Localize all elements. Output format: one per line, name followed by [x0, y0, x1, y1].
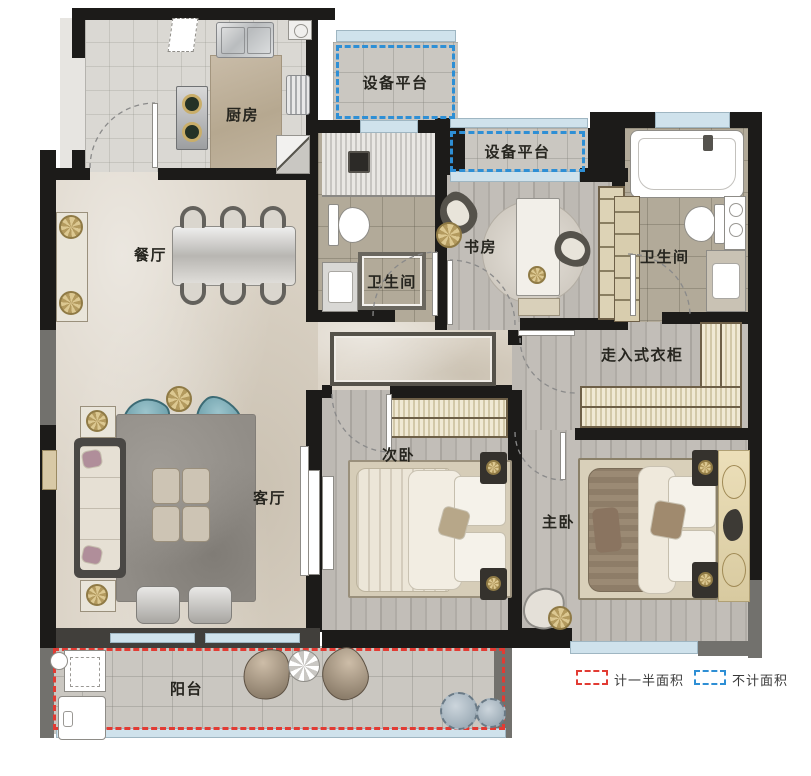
sink-basin: [247, 27, 271, 54]
burner: [182, 122, 202, 142]
headboard-motif: [722, 465, 746, 499]
bedroom2-label: 次卧: [382, 444, 415, 465]
dining-chair: [260, 206, 286, 228]
headboard-panel: [718, 450, 750, 602]
sideboard-decor: [59, 215, 83, 239]
sink-basin: [70, 657, 100, 687]
burner: [182, 94, 202, 114]
wall: [318, 120, 360, 133]
window-sill: [336, 30, 456, 42]
master-label: 主卧: [542, 511, 575, 532]
balcony-table: [288, 650, 320, 682]
legend: 计一半面积 不计面积: [576, 666, 796, 692]
kitchen-counter-appliance: [288, 20, 312, 40]
dining-chair: [220, 206, 246, 228]
plant: [440, 692, 478, 730]
sink-basin: [328, 271, 353, 303]
wall: [390, 385, 512, 398]
washer-dial: [63, 711, 73, 727]
laundry-sink: [64, 650, 106, 692]
window-sill: [450, 118, 588, 128]
ceiling-lamp: [166, 386, 192, 412]
desk-decor: [528, 266, 546, 284]
bathtub-basin: [638, 138, 736, 190]
wardrobe-rail: [390, 417, 506, 419]
wall-gray: [748, 580, 762, 658]
nightstand: [480, 452, 507, 484]
legend-not-counted-label: 不计面积: [732, 670, 788, 689]
lamp: [698, 572, 713, 587]
dining-sideboard: [56, 212, 88, 322]
wardrobe: [388, 398, 508, 438]
wall: [748, 112, 762, 580]
balcony-sliding-glass: [110, 633, 195, 643]
closet-label: 走入式衣柜: [601, 344, 684, 365]
ottoman: [182, 506, 210, 542]
ladder-shelf: [614, 196, 640, 322]
bath2-label: 卫生间: [640, 246, 690, 267]
lamp: [486, 576, 501, 591]
wall: [72, 8, 85, 58]
shower-drain: [348, 151, 370, 173]
platform-top-area: 设备平台: [336, 45, 455, 119]
window: [655, 112, 730, 128]
ottoman: [152, 506, 180, 542]
ottoman: [152, 468, 180, 504]
deco-pillow: [649, 499, 687, 540]
dish-rack: [286, 75, 310, 115]
bathtub-faucet: [703, 135, 713, 151]
balcony-sliding-glass: [205, 633, 300, 643]
wall: [437, 310, 447, 322]
bathtub: [630, 130, 744, 198]
platform-mid-area: 设备平台: [450, 131, 585, 172]
lamp: [486, 460, 501, 475]
media-panel: [300, 446, 309, 576]
door-leaf: [432, 252, 438, 316]
master-side-table: [548, 606, 572, 630]
wall: [40, 150, 56, 330]
dining-label: 餐厅: [134, 244, 167, 265]
living-label: 客厅: [253, 487, 286, 508]
door-leaf: [630, 254, 636, 316]
window: [360, 120, 418, 133]
towel-roll: [729, 203, 743, 217]
corridor-floor-inlay: [330, 332, 496, 386]
dining-table: [172, 226, 296, 286]
wall: [418, 120, 435, 133]
towel-roll: [729, 223, 743, 237]
nightstand: [692, 562, 719, 598]
door-leaf: [518, 330, 575, 336]
wall: [512, 628, 572, 648]
sink-basin: [221, 27, 245, 54]
stool: [136, 586, 180, 624]
door-leaf: [560, 432, 566, 480]
wall-console: [42, 450, 57, 490]
side-table: [80, 406, 116, 438]
study-side-table: [436, 222, 462, 248]
wardrobe: [700, 322, 742, 388]
entry-door-leaf: [168, 18, 199, 52]
window: [450, 171, 580, 182]
blanket-fold: [592, 507, 622, 553]
bath1-label: 卫生间: [367, 271, 417, 292]
vanity-sink: [706, 250, 746, 312]
balcony-label: 阳台: [170, 678, 203, 699]
sink-basin: [712, 263, 740, 299]
legend-half-area-label: 计一半面积: [614, 670, 684, 689]
wall-gray-window: [40, 330, 56, 425]
lamp: [698, 460, 713, 475]
door-leaf: [447, 260, 453, 325]
side-table: [80, 580, 116, 612]
study-label: 书房: [464, 236, 497, 257]
legend-swatch-half-area: [576, 670, 608, 685]
bath2-shelf: [724, 196, 746, 250]
side-table-decor: [86, 410, 108, 432]
door-leaf: [152, 103, 158, 168]
window: [570, 641, 698, 654]
kitchen-cabinet: [276, 135, 310, 174]
shower-floor: [322, 133, 435, 197]
wall: [322, 385, 332, 398]
headboard-center-motif: [723, 509, 743, 541]
wall-niche-panel: [308, 470, 320, 575]
wall: [590, 112, 655, 128]
washing-machine: [58, 696, 106, 740]
wardrobe-rail: [720, 324, 722, 386]
platform-top-label: 设备平台: [362, 72, 428, 93]
headboard-motif: [722, 553, 746, 587]
stool: [188, 586, 232, 624]
nightstand: [480, 568, 507, 600]
floor-plan: 设备平台 设备平台: [0, 0, 811, 776]
wardrobe-rail: [582, 406, 740, 408]
window-panel: [322, 476, 334, 570]
sideboard-decor: [59, 291, 83, 315]
vanity-sink: [322, 262, 358, 312]
nightstand: [692, 450, 719, 486]
wall-gray: [698, 641, 750, 656]
desk-drawer: [518, 298, 560, 316]
dining-chair: [180, 206, 206, 228]
gas-stove: [176, 86, 208, 150]
legend-swatch-not-counted: [694, 670, 726, 685]
chair-seat: [558, 234, 589, 263]
kitchen-sink: [216, 22, 274, 58]
wall: [575, 428, 748, 440]
platform-mid-label: 设备平台: [484, 141, 550, 162]
wall: [56, 168, 90, 180]
wardrobe: [580, 386, 742, 428]
toilet-bowl: [684, 206, 716, 242]
ottoman: [182, 468, 210, 504]
side-table-decor: [86, 584, 108, 606]
mop-basin: [50, 652, 68, 670]
bath1-floor-inlay: 卫生间: [358, 252, 426, 310]
plant: [476, 698, 506, 728]
kitchen-label: 厨房: [226, 104, 259, 125]
appliance-dial: [294, 24, 308, 38]
wall: [322, 630, 512, 648]
wall: [85, 8, 335, 20]
sofa: [74, 438, 126, 578]
